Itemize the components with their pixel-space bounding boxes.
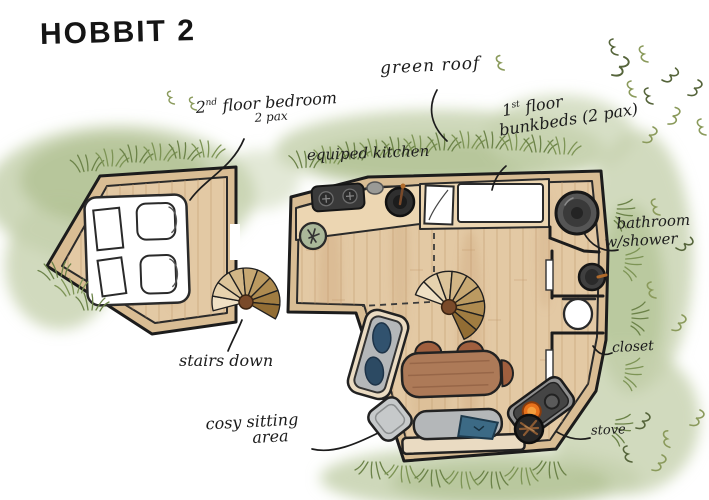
firewood-basket: [515, 415, 543, 443]
washbasin: [579, 264, 606, 290]
pillow: [98, 257, 127, 296]
double-bed: [84, 194, 190, 305]
sofa-pillow: [372, 323, 391, 354]
label-closet: closet: [612, 338, 655, 357]
bunk-bed: [420, 179, 549, 229]
side-table: [300, 223, 326, 249]
label-bathroom: bathroom w/shower: [603, 212, 691, 252]
leader-sitting: [312, 433, 378, 450]
leader-stairs: [228, 320, 242, 351]
duvet: [140, 255, 176, 294]
closet-door: [546, 350, 553, 380]
pillow: [93, 208, 123, 250]
cooktop: [311, 183, 365, 212]
pillow-sheet: [424, 186, 453, 225]
floor-plan-page: HOBBIT 2 2nd floor bedroom 2 pax green r…: [0, 0, 709, 500]
label-sitting-area: cosy sitting area: [205, 411, 299, 451]
plan-title: HOBBIT 2: [40, 14, 197, 52]
mattress: [458, 184, 543, 222]
label-stove: stove: [591, 422, 626, 439]
counter-knob: [367, 182, 383, 194]
bathroom-door: [546, 260, 553, 290]
duvet: [136, 203, 175, 240]
label-stairs-down: stairs down: [179, 352, 273, 371]
main-building: [288, 171, 608, 461]
bedroom-door-gap: [230, 224, 240, 260]
bedroom-ordinal-suffix: nd: [205, 97, 217, 108]
faucet: [598, 275, 606, 277]
shower: [556, 192, 598, 234]
